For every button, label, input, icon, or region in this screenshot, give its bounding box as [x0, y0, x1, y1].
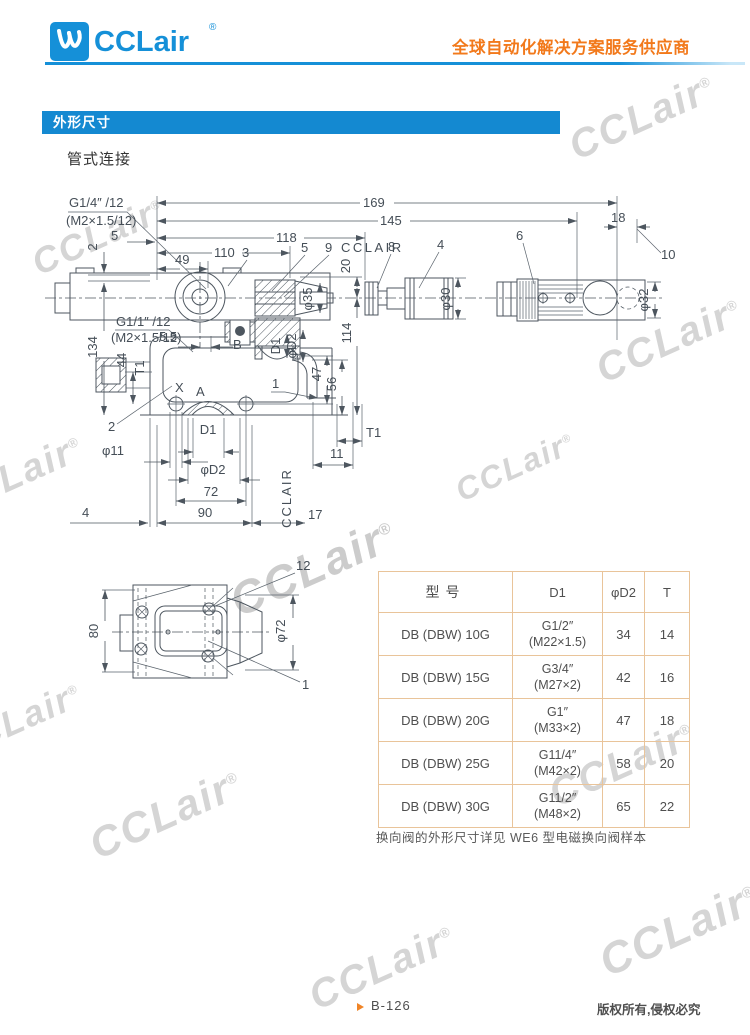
part-label-1-mid: 1	[272, 376, 279, 391]
watermark: CCLair®	[563, 65, 723, 169]
dimension-lines	[70, 203, 655, 523]
watermark: CCLair®	[450, 424, 581, 510]
cell-d1: G1″(M33×2)	[513, 699, 603, 742]
dim-label-49: 49	[175, 252, 189, 267]
dim-label-phi11: φ11	[102, 443, 124, 458]
dim-label-134: 134	[85, 336, 100, 358]
section-title-bar: 外形尺寸	[42, 111, 560, 134]
col-header-d1: D1	[513, 572, 603, 613]
dim-label-114: 114	[339, 323, 354, 344]
dim-label-thread-left: (M2×1.5/12)	[111, 330, 181, 345]
cell-d1: G3/4″(M27×2)	[513, 656, 603, 699]
dim-label-169: 169	[363, 195, 385, 210]
port-label-x: X	[175, 380, 184, 395]
company-tagline: 全球自动化解决方案服务供应商	[452, 34, 690, 58]
dim-label-80: 80	[86, 624, 101, 638]
dim-label-20: 20	[338, 259, 353, 273]
dim-label-56: 56	[324, 377, 339, 391]
company-logo-icon	[50, 22, 89, 61]
section-title: 外形尺寸	[42, 111, 560, 134]
dim-label-phi35: φ35	[300, 288, 315, 311]
leader-lines	[68, 212, 661, 424]
watermark: CCLair®	[82, 759, 250, 869]
cell-d2: 34	[603, 613, 645, 656]
cell-d1: G1/2″(M22×1.5)	[513, 613, 603, 656]
cell-d2: 42	[603, 656, 645, 699]
d1-thread: (M48×2)	[513, 806, 602, 822]
part-label-4: 4	[437, 237, 444, 252]
table-row: DB (DBW) 15G G3/4″(M27×2) 42 16	[379, 656, 690, 699]
header-divider	[45, 62, 745, 65]
cell-model: DB (DBW) 10G	[379, 613, 513, 656]
d1-size: G3/4″	[513, 661, 602, 677]
watermark: CCLair®	[592, 873, 750, 988]
dim-label-90: 90	[198, 505, 212, 520]
section-subtitle: 管式连接	[67, 148, 131, 169]
d1-thread: (M33×2)	[513, 720, 602, 736]
part-label-3: 3	[242, 245, 249, 260]
dim-label-47: 47	[309, 367, 324, 381]
port-label-t1-left: T1	[132, 360, 147, 375]
cclair-drawing-label: CCLAIR	[341, 240, 404, 255]
cell-d1: G11/4″(M42×2)	[513, 742, 603, 785]
dim-label-phi30: φ30	[438, 288, 453, 311]
cclair-vertical-label: CCLAIR	[279, 468, 294, 528]
table-row: DB (DBW) 10G G1/2″(M22×1.5) 34 14	[379, 613, 690, 656]
watermark: CCLair®	[26, 188, 172, 284]
dim-label-d1-small: D1	[268, 338, 283, 355]
part-label-10: 10	[661, 247, 675, 262]
cell-d1: G11/2″(M48×2)	[513, 785, 603, 828]
dim-label-5-5: 5.5	[159, 329, 177, 344]
part-label-1-bottom: 1	[302, 677, 309, 692]
dim-label-145: 145	[380, 213, 402, 228]
part-label-5: 5	[301, 240, 308, 255]
page-number: B-126	[371, 998, 411, 1013]
d1-size: G11/2″	[513, 790, 602, 806]
cell-model: DB (DBW) 20G	[379, 699, 513, 742]
cell-t: 20	[645, 742, 690, 785]
cell-model: DB (DBW) 30G	[379, 785, 513, 828]
dim-label-port-left: G1/1″ /12	[116, 314, 170, 329]
extension-lines	[88, 196, 661, 527]
dim-label-phi72: φ72	[273, 620, 288, 643]
company-logo-text: CCLair	[94, 26, 189, 59]
cell-d2: 47	[603, 699, 645, 742]
part-label-9: 9	[325, 240, 332, 255]
port-label-t1-bottom: T1	[366, 425, 381, 440]
valve-lower-body	[96, 337, 348, 415]
dim-label-110: 110	[214, 245, 235, 260]
dim-label-17: 17	[308, 507, 322, 522]
cell-t: 18	[645, 699, 690, 742]
col-header-model: 型号	[379, 572, 513, 613]
dim-label-44: 44	[114, 353, 129, 367]
table-row: DB (DBW) 30G G11/2″(M48×2) 65 22	[379, 785, 690, 828]
logo-swoosh-icon	[50, 22, 89, 61]
copyright-text: 版权所有,侵权必究	[597, 999, 700, 1018]
dim-label-11: 11	[330, 446, 344, 461]
cell-model: DB (DBW) 15G	[379, 656, 513, 699]
cell-d2: 58	[603, 742, 645, 785]
dim-label-phi32: φ32	[636, 289, 651, 312]
d1-size: G1/2″	[513, 618, 602, 634]
col-header-t: T	[645, 572, 690, 613]
d1-thread: (M27×2)	[513, 677, 602, 693]
drawing-labels: G1/4″ /12 (M2×1.5/12) 5 2 169 145 118 11…	[66, 195, 675, 528]
dim-label-phid2: φD2	[200, 462, 225, 477]
part-label-6: 6	[516, 228, 523, 243]
watermark: CCLair®	[0, 673, 89, 769]
dimension-spec-table: 型号 D1 φD2 T DB (DBW) 10G G1/2″(M22×1.5) …	[378, 571, 690, 828]
table-row: DB (DBW) 20G G1″(M33×2) 47 18	[379, 699, 690, 742]
port-label-b: B	[233, 337, 242, 352]
cell-t: 22	[645, 785, 690, 828]
part-label-8: 8	[388, 239, 395, 254]
cell-model: DB (DBW) 25G	[379, 742, 513, 785]
pilot-valve-section	[225, 318, 336, 398]
dim-label-18: 18	[611, 210, 625, 225]
port-label-a: A	[196, 384, 205, 399]
d1-size: G1″	[513, 704, 602, 720]
dim-label-72: 72	[204, 484, 218, 499]
part-label-2-bottom: 2	[108, 419, 115, 434]
table-row: DB (DBW) 25G G11/4″(M42×2) 58 20	[379, 742, 690, 785]
d1-thread: (M42×2)	[513, 763, 602, 779]
cell-t: 16	[645, 656, 690, 699]
dim-label-118: 118	[276, 230, 297, 245]
valve-body-side-view	[55, 268, 333, 322]
cell-d2: 65	[603, 785, 645, 828]
table-header-row: 型号 D1 φD2 T	[379, 572, 690, 613]
watermark: CCLair®	[0, 427, 91, 527]
d1-size: G11/4″	[513, 747, 602, 763]
adjustment-knob	[365, 278, 453, 319]
dim-label-d1: D1	[200, 422, 217, 437]
cell-t: 14	[645, 613, 690, 656]
dim-label-phid2-small: φD2	[284, 333, 299, 358]
dim-label-4: 4	[82, 505, 89, 520]
page-marker-icon	[357, 1003, 364, 1011]
col-header-d2: φD2	[603, 572, 645, 613]
reference-note: 换向阀的外形尺寸详见 WE6 型电磁换向阀样本	[376, 827, 647, 846]
catalog-page: { "header": { "logo_text": "CCLair", "lo…	[0, 0, 750, 1035]
d1-thread: (M22×1.5)	[513, 634, 602, 650]
logo-registered-mark: ®	[209, 22, 216, 33]
handwheel-assembly	[497, 279, 645, 321]
watermark: CCLair®	[590, 288, 750, 392]
